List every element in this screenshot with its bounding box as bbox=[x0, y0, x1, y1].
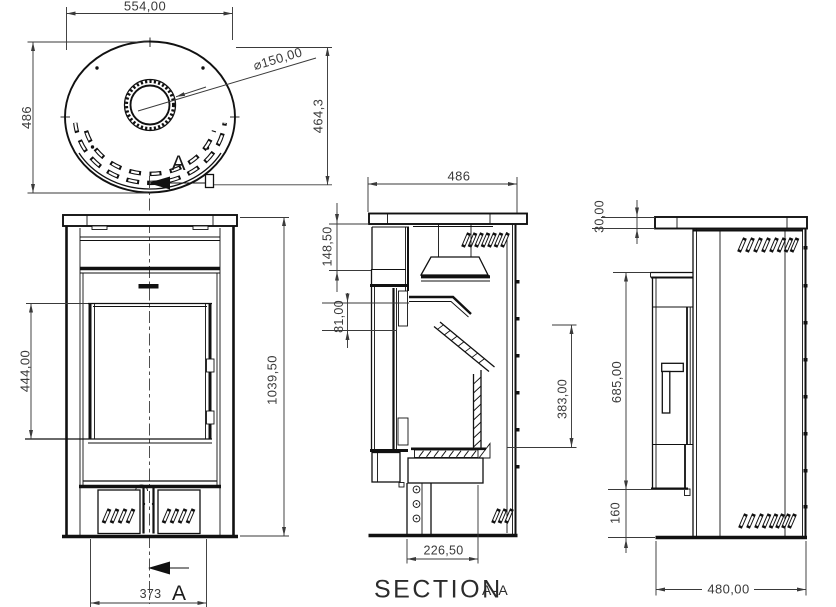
section-view: 486 148,50 81,00 383,00 bbox=[321, 169, 577, 604]
dim-label-baffle-drop: 81,00 bbox=[332, 300, 346, 333]
front-top-plate bbox=[63, 215, 237, 230]
dim-label-base-depth: 226,50 bbox=[423, 544, 463, 558]
dim-plinth-height: 160 bbox=[608, 490, 655, 554]
section-cut-arrow-front bbox=[148, 562, 189, 575]
dim-section-top-depth: 148,50 bbox=[321, 203, 372, 292]
dim-label-firebox-height: 383,00 bbox=[556, 379, 570, 419]
cut-label-top: A bbox=[171, 152, 185, 175]
dim-base-depth: 226,50 bbox=[407, 485, 478, 564]
dim-label-top-width: 554,00 bbox=[124, 0, 166, 14]
dim-door-height: 685,00 bbox=[608, 273, 688, 490]
top-view: A 554,00 486 ⌀150,00 464,3 bbox=[19, 0, 332, 193]
front-view: 444,00 1039,50 373 A bbox=[18, 176, 290, 607]
dim-overall-depth: 480,00 bbox=[656, 541, 806, 597]
door-glass bbox=[25, 304, 212, 444]
side-top-plate bbox=[655, 217, 807, 229]
dim-label-section-top-depth: 148,50 bbox=[321, 226, 335, 266]
dim-label-top-thickness: 30,00 bbox=[593, 200, 607, 233]
section-top-vents bbox=[463, 233, 508, 247]
side-body bbox=[656, 229, 808, 538]
firebox-floor bbox=[408, 449, 486, 483]
baffle-plate bbox=[409, 297, 471, 317]
dim-label-overall-depth: 480,00 bbox=[707, 582, 749, 597]
screw-dots bbox=[91, 66, 209, 149]
side-bottom-vents bbox=[740, 514, 795, 528]
door-handle-front bbox=[139, 284, 159, 289]
side-view: 30,00 685,00 160 480,00 bbox=[592, 200, 808, 597]
dim-label-overall-height: 1039,50 bbox=[265, 355, 280, 405]
air-vent-slot-arcs bbox=[75, 123, 224, 183]
dim-label-plinth-height: 160 bbox=[609, 502, 623, 524]
side-door bbox=[651, 273, 694, 496]
dim-overall-height: 1039,50 bbox=[240, 217, 289, 536]
air-control-knob bbox=[206, 175, 214, 188]
dim-label-top-depth: 486 bbox=[19, 106, 34, 129]
section-door bbox=[370, 270, 408, 488]
door-latch-upper bbox=[207, 359, 215, 372]
dim-flue-diameter: ⌀150,00 bbox=[138, 44, 316, 111]
dim-top-width: 554,00 bbox=[67, 0, 233, 50]
dim-door-width: 373 bbox=[91, 539, 207, 607]
front-body bbox=[62, 226, 238, 537]
door-latch-lower bbox=[207, 411, 215, 424]
base-column bbox=[407, 483, 431, 536]
dim-top-thickness: 30,00 bbox=[592, 200, 655, 244]
dim-glass-height: 444,00 bbox=[18, 304, 89, 440]
flue-connector bbox=[421, 224, 490, 281]
top-plate-outline bbox=[65, 42, 235, 193]
side-top-vents bbox=[739, 238, 798, 252]
dim-baffle-drop: 81,00 bbox=[322, 293, 409, 348]
section-top-plate bbox=[369, 214, 527, 227]
drawing-canvas: A 554,00 486 ⌀150,00 464,3 bbox=[0, 0, 836, 607]
dim-label-flue-diameter: ⌀150,00 bbox=[251, 44, 304, 73]
section-title-suffix: A-A bbox=[482, 582, 509, 598]
dim-label-door-width: 373 bbox=[140, 587, 162, 601]
dim-label-section-top-width: 486 bbox=[448, 169, 471, 184]
dim-section-top-width: 486 bbox=[368, 169, 517, 213]
section-bottom-vents bbox=[493, 509, 512, 523]
door-handle-bracket bbox=[662, 363, 684, 371]
stove-technical-drawing: A 554,00 486 ⌀150,00 464,3 bbox=[0, 0, 836, 607]
rear-baffle-band bbox=[434, 322, 495, 458]
door-handle-side bbox=[662, 372, 670, 414]
cut-label-front: A bbox=[172, 582, 186, 605]
dim-label-glass-height: 444,00 bbox=[18, 350, 33, 392]
flue-collar bbox=[125, 80, 176, 131]
dim-label-flue-offset: 464,3 bbox=[311, 99, 326, 134]
dim-label-door-height: 685,00 bbox=[609, 361, 624, 403]
front-base bbox=[79, 481, 221, 534]
